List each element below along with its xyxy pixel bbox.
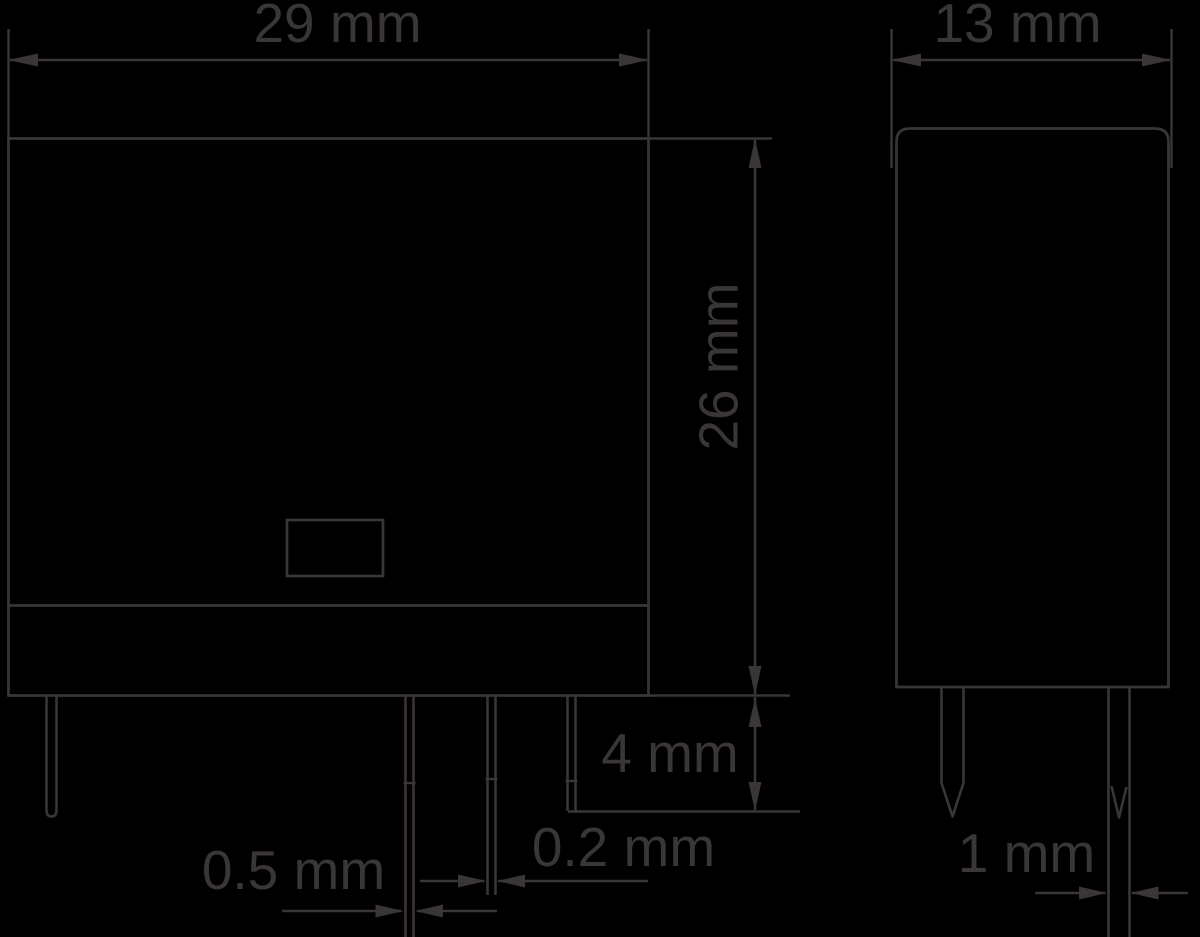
dim-label-pin-web: 0.2 mm [532, 816, 715, 878]
dim-label-side-width: 13 mm [933, 0, 1101, 54]
canvas-background [0, 0, 1200, 937]
dim-label-pin-protrusion: 4 mm [601, 722, 739, 784]
dim-label-pin-thickness: 0.5 mm [202, 839, 385, 901]
dim-label-front-width: 29 mm [253, 0, 421, 54]
dim-label-side-pin-width: 1 mm [958, 822, 1096, 884]
dim-label-front-height: 26 mm [688, 282, 750, 450]
technical-drawing: 29 mm 26 mm 4 mm 0.2 mm 0.5 mm [0, 0, 1200, 937]
